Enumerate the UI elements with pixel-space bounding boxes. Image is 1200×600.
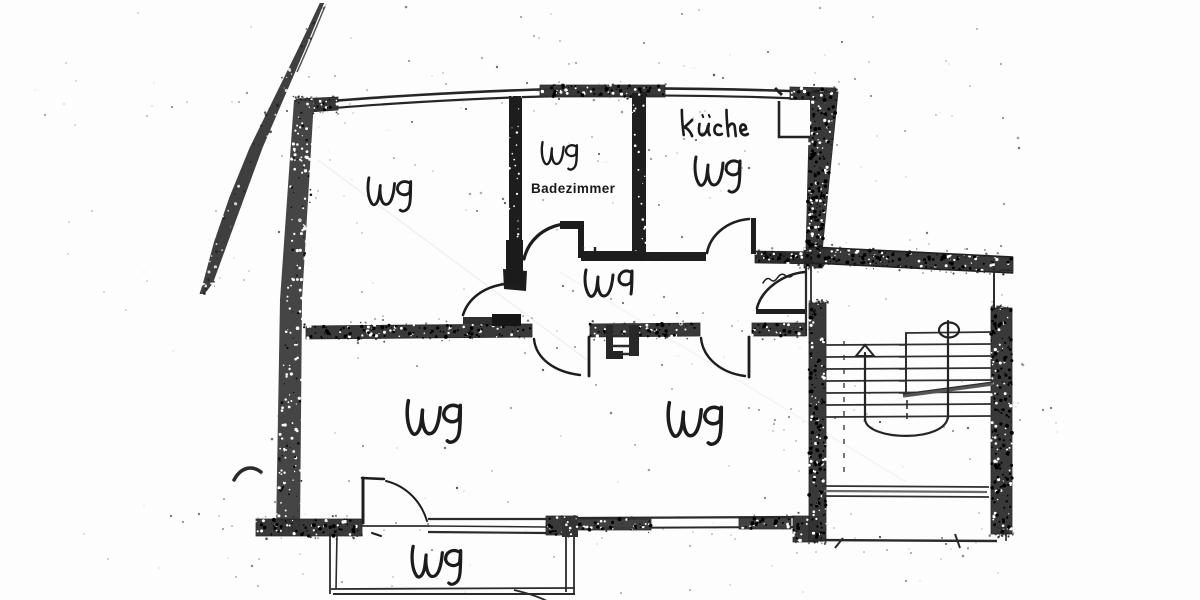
svg-text:Badezimmer: Badezimmer [531,181,616,196]
